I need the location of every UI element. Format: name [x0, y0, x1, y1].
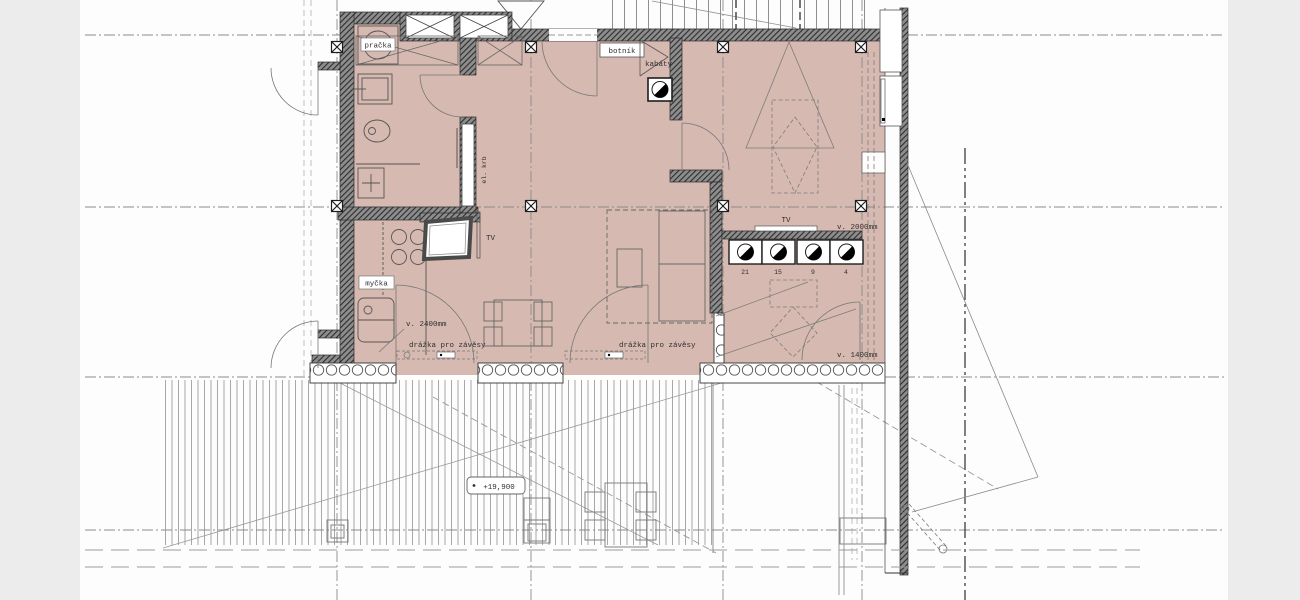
electric-fireplace-label: el. krb	[481, 156, 488, 183]
elevation-dot	[473, 484, 476, 487]
closet-unit	[406, 15, 454, 38]
insulated-wall-2	[478, 363, 563, 383]
insulated-wall-3	[700, 363, 885, 383]
elevation-marker: +19,900	[467, 477, 525, 494]
stair-treads	[604, 0, 870, 29]
curtain-marker-right	[605, 352, 623, 358]
column-marker	[856, 42, 867, 53]
terrace-decking	[160, 380, 713, 545]
closet-unit	[460, 15, 508, 38]
curtain-marker-left	[437, 352, 455, 358]
fireplace-niche	[462, 124, 474, 206]
tv-kitchen-label: TV	[486, 235, 496, 243]
window-handle-dot	[882, 118, 885, 121]
wall-stub-left-upper	[318, 62, 340, 70]
step-number: 15	[774, 269, 782, 276]
step-number: 9	[811, 269, 815, 276]
wall-tv-low	[722, 231, 862, 239]
column-marker	[718, 42, 729, 53]
curtain-groove-left-label: drážka pro závěsy	[409, 342, 486, 350]
curtain-dot-right	[608, 354, 610, 356]
wall-bathroom-top	[352, 12, 400, 24]
washer-label: pračka	[364, 43, 392, 51]
height-1400-label: v. 1400mm	[837, 352, 878, 360]
tv-shelf	[755, 226, 817, 231]
dishwasher-label: myčka	[365, 281, 388, 289]
floor-plan-screenshot: el. krb pračka myčka TV	[0, 0, 1300, 600]
column-marker	[332, 42, 343, 53]
mask-above-bathroom	[352, 0, 512, 12]
step-number: 4	[844, 269, 848, 276]
column-marker	[856, 201, 867, 212]
floor-plan-drawing: el. krb pračka myčka TV	[0, 0, 1300, 600]
right-window-upper	[880, 10, 902, 72]
step-number: 21	[741, 269, 749, 276]
column-marker	[526, 201, 537, 212]
insulated-wall-1	[310, 363, 396, 383]
column-marker	[526, 42, 537, 53]
elevation-label: +19,900	[483, 484, 515, 492]
tv-bedroom-label: TV	[781, 217, 791, 225]
insulated-wall-vertical	[714, 313, 724, 363]
wall-notch	[862, 152, 885, 173]
wall-stub-left-lower	[318, 330, 340, 338]
height-2400-label: v. 2400mm	[406, 321, 447, 329]
wall-left	[340, 12, 354, 375]
wall-entry-horizontal	[670, 170, 722, 182]
entry-opening	[549, 29, 597, 41]
height-2000-label: v. 2000mm	[837, 224, 878, 232]
shoe-cabinet-label: botník	[608, 48, 636, 56]
column-marker	[718, 201, 729, 212]
curtain-groove-right-label: drážka pro závěsy	[619, 342, 696, 350]
coats-label: kabáty	[645, 61, 673, 69]
curtain-dot-left	[440, 354, 442, 356]
column-marker	[332, 201, 343, 212]
